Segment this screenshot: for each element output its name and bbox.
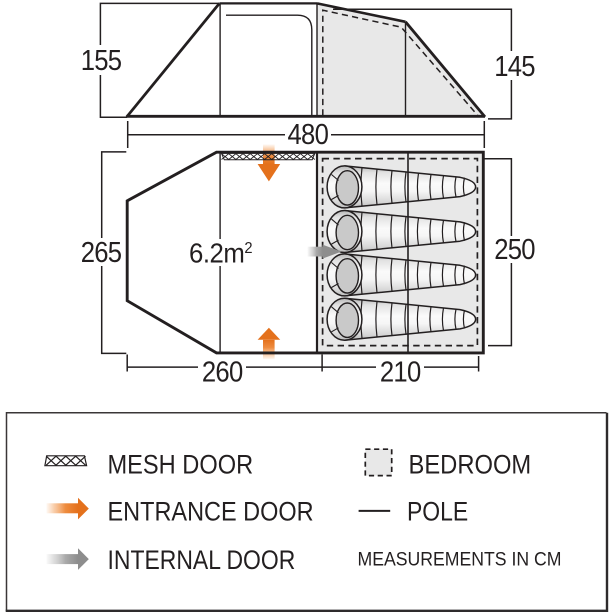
- svg-text:INTERNAL DOOR: INTERNAL DOOR: [108, 545, 296, 575]
- svg-text:6.2m2: 6.2m2: [189, 238, 252, 269]
- svg-text:480: 480: [287, 118, 328, 151]
- svg-text:210: 210: [380, 355, 421, 388]
- svg-text:265: 265: [81, 236, 122, 269]
- svg-text:260: 260: [202, 355, 243, 388]
- svg-text:ENTRANCE DOOR: ENTRANCE DOOR: [108, 497, 314, 527]
- svg-text:BEDROOM: BEDROOM: [409, 450, 532, 480]
- svg-text:155: 155: [81, 44, 122, 77]
- svg-text:MESH DOOR: MESH DOOR: [108, 450, 254, 480]
- svg-text:POLE: POLE: [407, 497, 468, 527]
- svg-text:145: 145: [494, 50, 535, 83]
- svg-text:250: 250: [494, 233, 535, 266]
- svg-text:MEASUREMENTS IN CM: MEASUREMENTS IN CM: [358, 548, 562, 570]
